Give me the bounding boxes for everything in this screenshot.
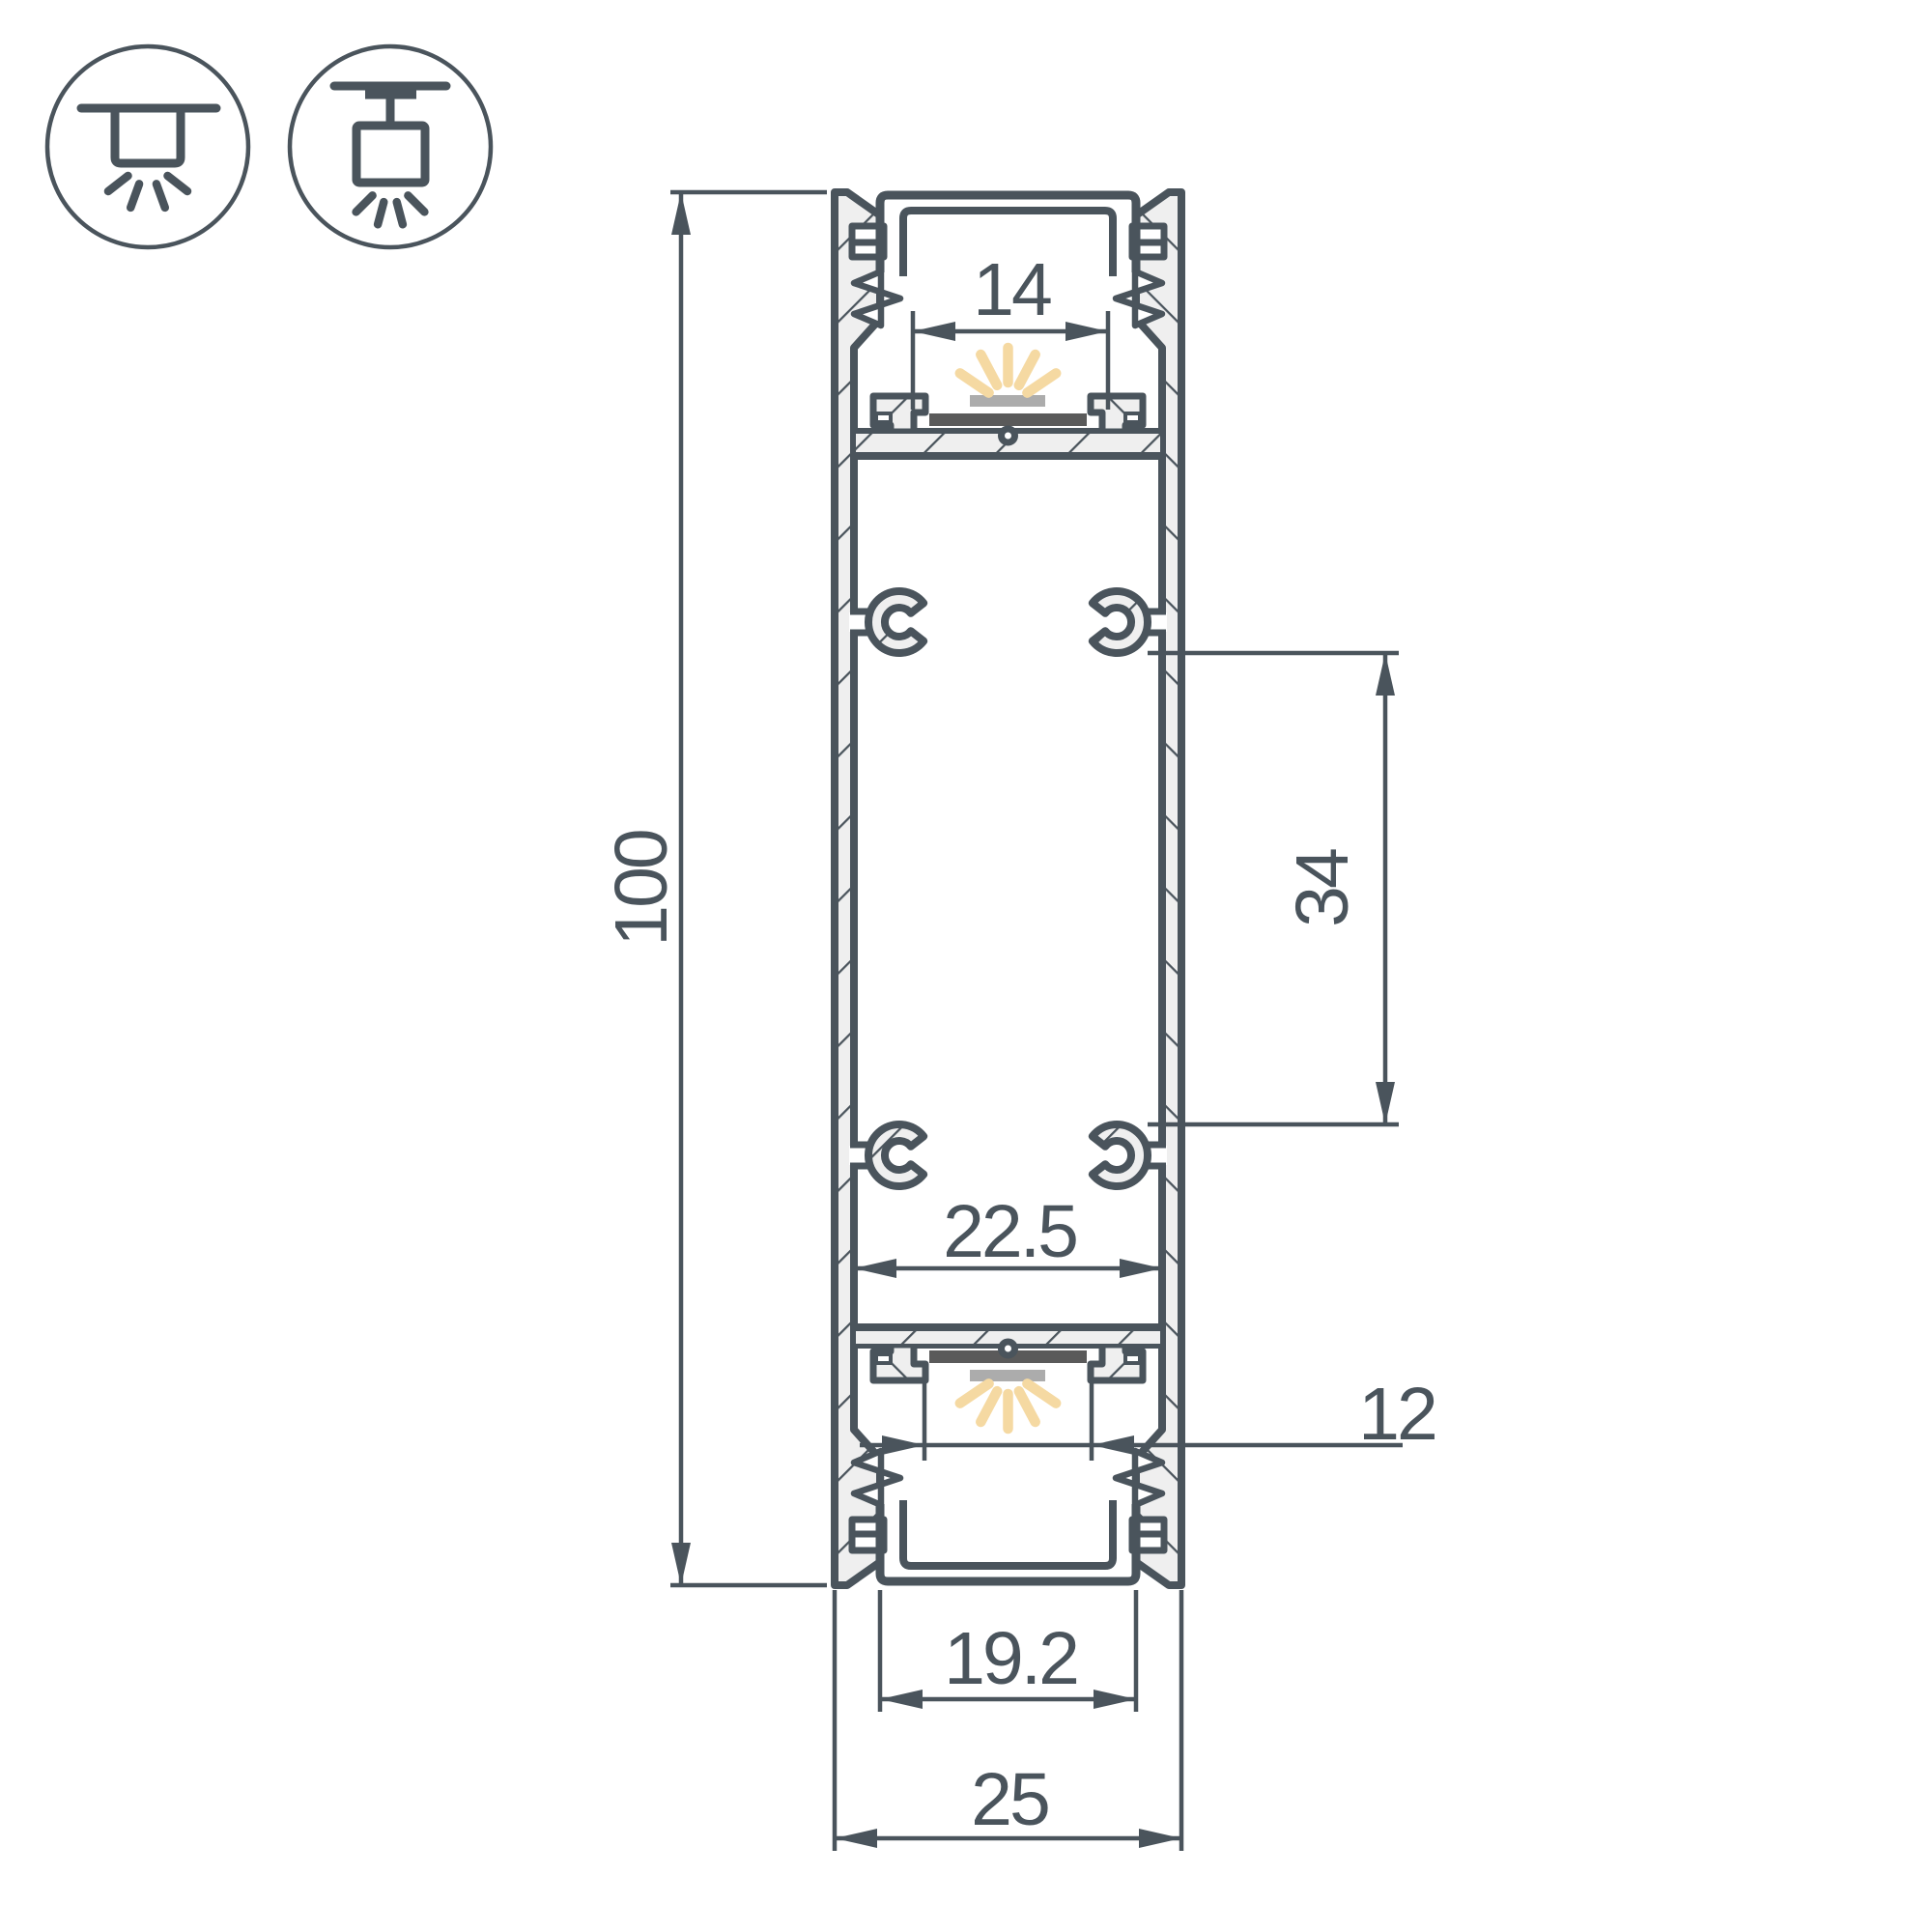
svg-text:19.2: 19.2 <box>944 1617 1077 1700</box>
svg-text:25: 25 <box>971 1758 1048 1841</box>
svg-text:100: 100 <box>600 831 683 947</box>
svg-text:34: 34 <box>1281 849 1364 927</box>
svg-text:12: 12 <box>1358 1373 1435 1456</box>
svg-text:22.5: 22.5 <box>943 1190 1076 1273</box>
svg-text:14: 14 <box>973 248 1051 331</box>
